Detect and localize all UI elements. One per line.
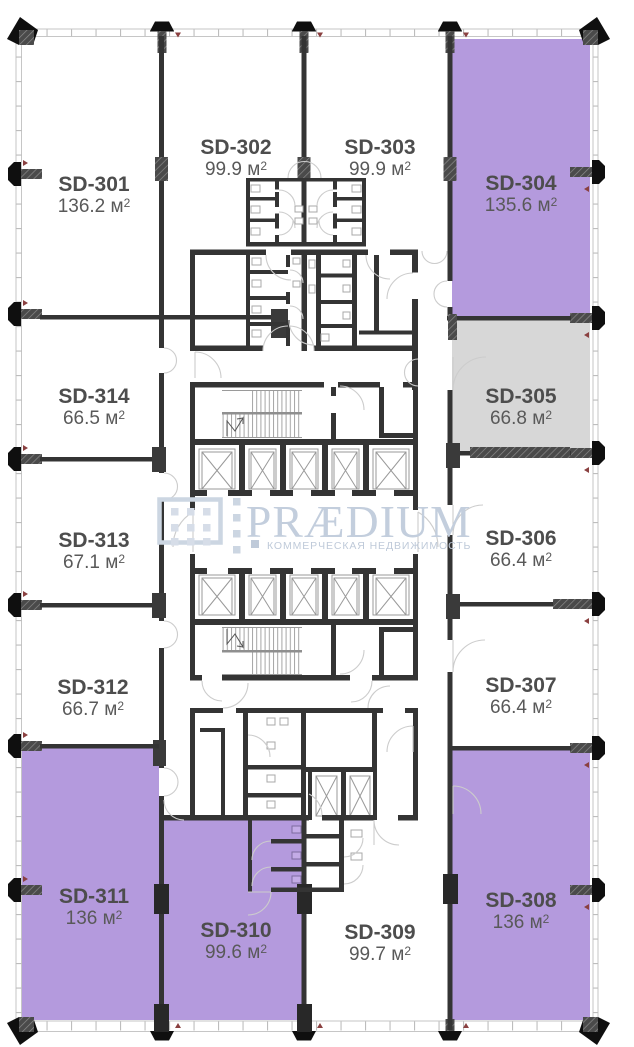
- svg-text:66.8 м2: 66.8 м2: [490, 408, 552, 429]
- svg-text:КОММЕРЧЕСКАЯ НЕДВИЖИМОСТЬ: КОММЕРЧЕСКАЯ НЕДВИЖИМОСТЬ: [267, 540, 471, 552]
- svg-text:SD-310: SD-310: [200, 919, 271, 942]
- svg-text:66.4 м2: 66.4 м2: [490, 697, 552, 718]
- svg-text:99.9 м2: 99.9 м2: [205, 159, 267, 180]
- svg-text:136 м2: 136 м2: [66, 908, 123, 929]
- svg-text:SD-304: SD-304: [485, 172, 557, 195]
- svg-text:67.1 м2: 67.1 м2: [63, 552, 125, 573]
- svg-text:SD-307: SD-307: [485, 674, 556, 697]
- svg-text:99.6 м2: 99.6 м2: [205, 942, 267, 963]
- svg-text:136.2 м2: 136.2 м2: [58, 196, 131, 217]
- svg-text:66.7 м2: 66.7 м2: [62, 699, 124, 720]
- svg-text:SD-313: SD-313: [58, 529, 129, 552]
- svg-text:SD-314: SD-314: [58, 385, 130, 408]
- svg-text:SD-311: SD-311: [59, 885, 129, 908]
- svg-text:99.7 м2: 99.7 м2: [349, 944, 411, 965]
- svg-text:99.9 м2: 99.9 м2: [349, 159, 411, 180]
- svg-text:66.4 м2: 66.4 м2: [490, 550, 552, 571]
- svg-text:SD-305: SD-305: [485, 385, 557, 408]
- svg-text:SD-301: SD-301: [58, 173, 130, 196]
- svg-text:136 м2: 136 м2: [493, 912, 550, 933]
- svg-text:SD-308: SD-308: [485, 889, 557, 912]
- svg-text:SD-303: SD-303: [344, 136, 415, 159]
- svg-text:SD-306: SD-306: [485, 527, 556, 550]
- svg-text:SD-312: SD-312: [57, 676, 128, 699]
- svg-text:66.5 м2: 66.5 м2: [63, 408, 125, 429]
- svg-text:SD-302: SD-302: [200, 136, 271, 159]
- svg-text:135.6 м2: 135.6 м2: [485, 195, 558, 216]
- svg-text:SD-309: SD-309: [344, 921, 415, 944]
